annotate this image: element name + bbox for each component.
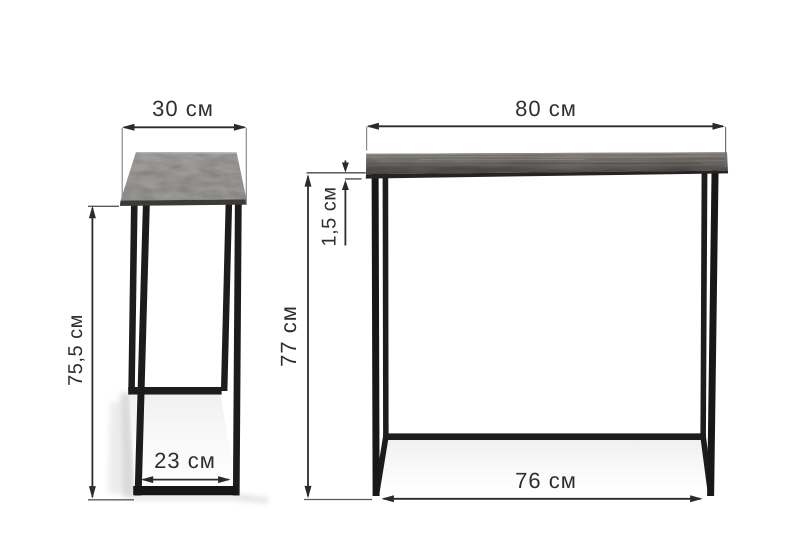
svg-text:77 см: 77 см — [276, 305, 301, 367]
svg-text:75,5 см: 75,5 см — [65, 314, 87, 386]
svg-text:80 см: 80 см — [515, 96, 577, 121]
svg-text:30 см: 30 см — [152, 96, 214, 121]
svg-text:23 см: 23 см — [154, 448, 216, 473]
svg-text:1,5 см: 1,5 см — [319, 186, 341, 246]
svg-text:76 см: 76 см — [515, 468, 577, 493]
